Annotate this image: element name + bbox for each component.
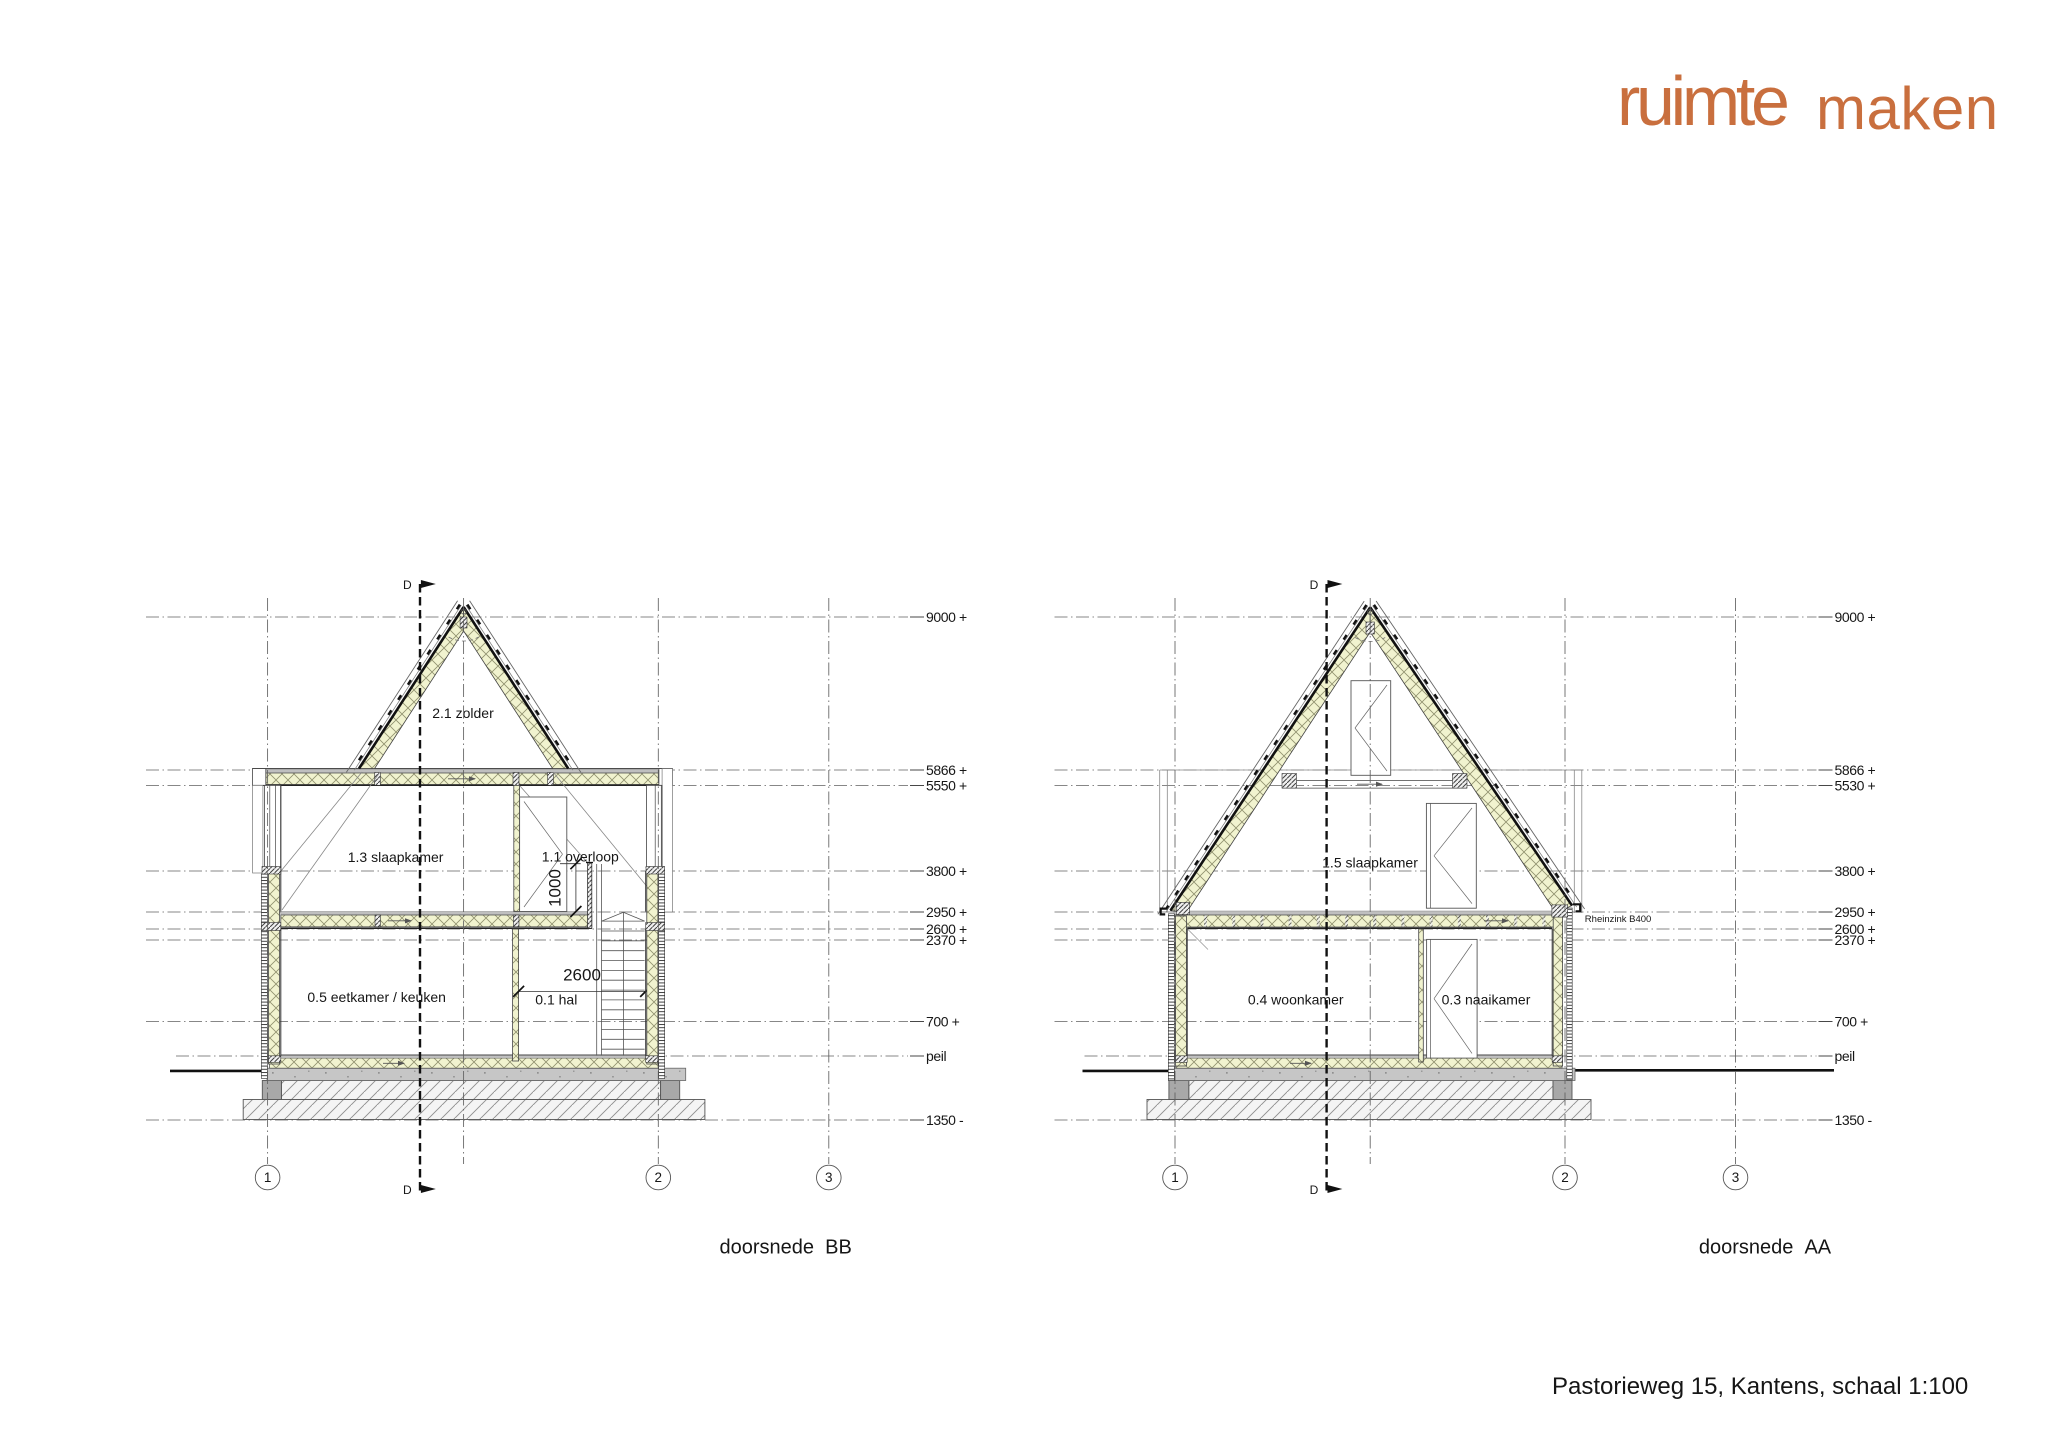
svg-text:9000 +: 9000 + (926, 609, 967, 625)
svg-text:1.1 overloop: 1.1 overloop (542, 849, 619, 865)
svg-text:5530 +: 5530 + (1835, 778, 1876, 794)
svg-text:2: 2 (655, 1170, 663, 1185)
svg-text:0.4 woonkamer: 0.4 woonkamer (1248, 992, 1344, 1008)
svg-text:1: 1 (264, 1170, 272, 1185)
svg-text:2600: 2600 (563, 966, 601, 985)
svg-text:Rheinzink B400: Rheinzink B400 (1585, 914, 1652, 925)
svg-text:2950 +: 2950 + (926, 904, 967, 920)
svg-text:doorsnede BB: doorsnede BB (720, 1237, 852, 1259)
svg-text:peil: peil (926, 1048, 946, 1064)
svg-text:3: 3 (825, 1170, 833, 1185)
svg-text:9000 +: 9000 + (1835, 609, 1876, 625)
svg-text:2950 +: 2950 + (1835, 904, 1876, 920)
svg-text:D: D (403, 1183, 412, 1197)
svg-text:1.3 slaapkamer: 1.3 slaapkamer (348, 849, 444, 865)
svg-text:700 +: 700 + (1835, 1014, 1869, 1030)
svg-text:D: D (403, 578, 412, 592)
svg-text:1350 -: 1350 - (926, 1112, 964, 1128)
svg-text:5866 +: 5866 + (926, 762, 967, 778)
svg-text:3800 +: 3800 + (1835, 863, 1876, 879)
svg-text:peil: peil (1835, 1048, 1855, 1064)
svg-text:doorsnede AA: doorsnede AA (1699, 1237, 1832, 1259)
svg-text:1350 -: 1350 - (1835, 1112, 1873, 1128)
svg-text:1: 1 (1171, 1170, 1179, 1185)
svg-text:2: 2 (1561, 1170, 1569, 1185)
svg-text:700 +: 700 + (926, 1014, 960, 1030)
svg-text:0.5 eetkamer / keuken: 0.5 eetkamer / keuken (307, 989, 446, 1005)
svg-text:2370 +: 2370 + (926, 932, 967, 948)
svg-text:1000: 1000 (546, 869, 565, 907)
svg-text:D: D (1310, 1183, 1319, 1197)
svg-text:ruimte: ruimte (1617, 62, 1787, 140)
svg-text:5550 +: 5550 + (926, 778, 967, 794)
svg-text:2.1 zolder: 2.1 zolder (432, 705, 494, 721)
svg-text:D: D (1310, 578, 1319, 592)
svg-text:3800 +: 3800 + (926, 863, 967, 879)
svg-text:2370 +: 2370 + (1835, 932, 1876, 948)
svg-text:Pastorieweg 15, Kantens, schaa: Pastorieweg 15, Kantens, schaal 1:100 (1552, 1373, 1968, 1400)
svg-text:0.3 naaikamer: 0.3 naaikamer (1442, 992, 1531, 1008)
svg-text:5866 +: 5866 + (1835, 762, 1876, 778)
svg-text:maken: maken (1816, 75, 1999, 142)
svg-text:3: 3 (1732, 1170, 1740, 1185)
svg-text:0.1 hal: 0.1 hal (535, 992, 577, 1008)
